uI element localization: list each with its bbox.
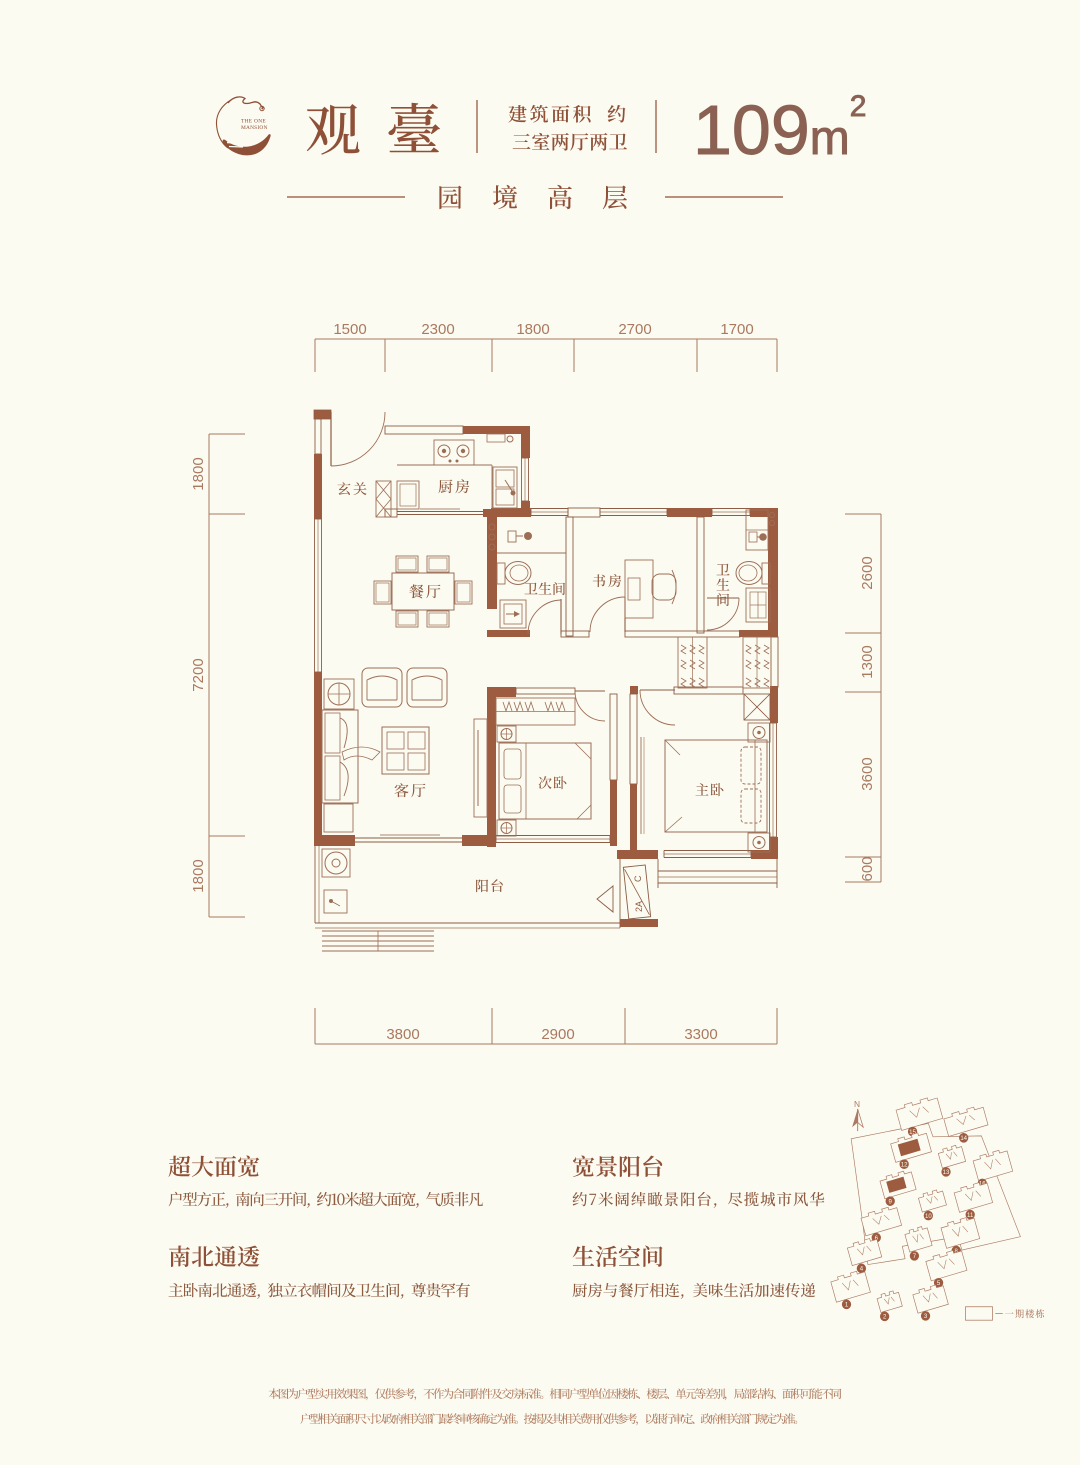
svg-text:7200: 7200 [190,658,207,691]
svg-text:12: 12 [901,1161,908,1168]
svg-text:3: 3 [924,1313,928,1320]
svg-text:3300: 3300 [684,1026,717,1043]
svg-text:4: 4 [860,1265,864,1272]
svg-text:11: 11 [967,1212,974,1219]
svg-text:3800: 3800 [386,1026,419,1043]
svg-text:2A: 2A [634,901,644,912]
svg-text:2900: 2900 [541,1026,574,1043]
svg-text:1700: 1700 [720,321,753,338]
svg-text:1300: 1300 [859,645,876,678]
svg-text:1500: 1500 [333,321,366,338]
svg-text:2700: 2700 [618,321,651,338]
svg-text:5: 5 [937,1280,941,1287]
svg-text:C: C [633,875,643,882]
svg-text:1: 1 [845,1301,849,1308]
svg-text:9: 9 [889,1198,893,1205]
svg-text:2600: 2600 [859,556,876,589]
svg-text:1800: 1800 [190,859,207,892]
svg-text:N: N [854,1099,860,1109]
svg-text:1800: 1800 [516,321,549,338]
svg-text:10: 10 [925,1213,932,1220]
svg-text:2300: 2300 [421,321,454,338]
svg-text:MANSION: MANSION [241,125,268,131]
svg-text:THE ONE: THE ONE [241,119,266,125]
svg-text:600: 600 [859,856,876,881]
svg-text:3600: 3600 [859,757,876,790]
svg-text:7: 7 [913,1253,917,1260]
svg-text:13: 13 [943,1169,950,1176]
svg-text:14: 14 [960,1135,967,1142]
svg-text:1800: 1800 [190,457,207,490]
svg-text:2: 2 [883,1313,887,1320]
